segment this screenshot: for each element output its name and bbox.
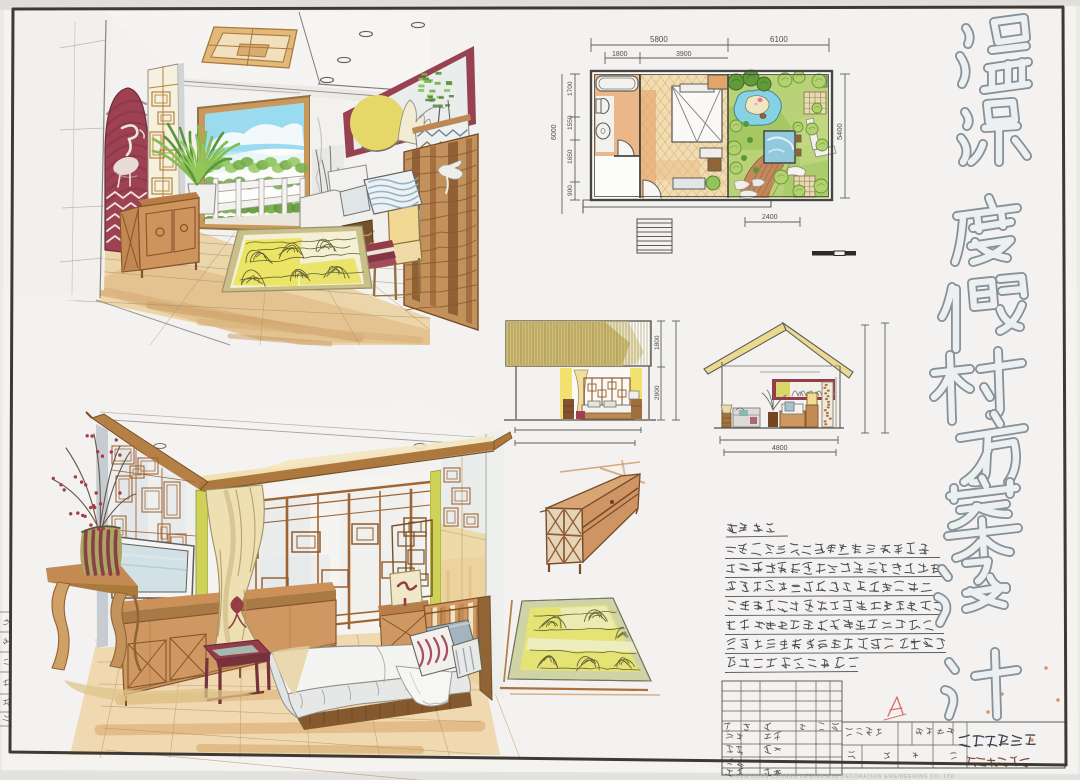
- svg-text:HONG DONG CHUANG DESIGN AND DE: HONG DONG CHUANG DESIGN AND DECORATION E…: [731, 774, 956, 780]
